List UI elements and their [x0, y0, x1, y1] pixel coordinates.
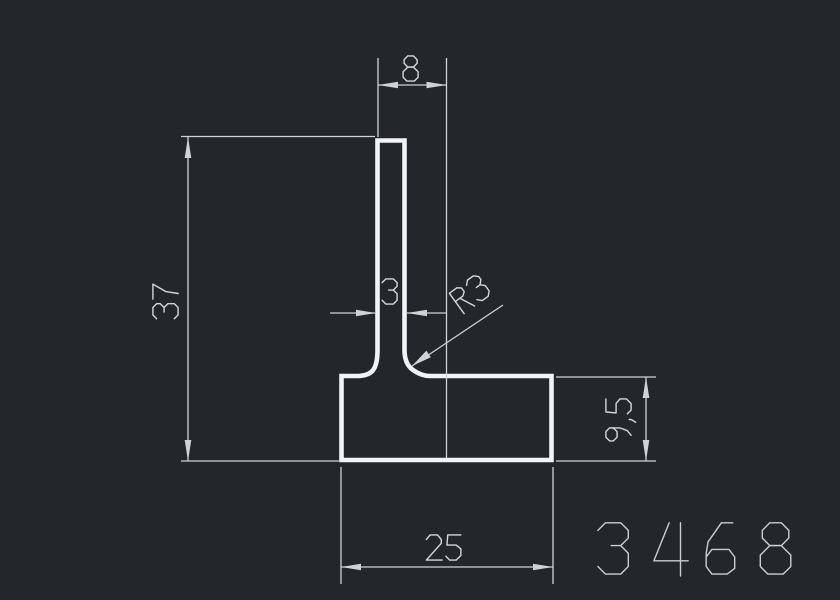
arrowhead-height-bottom	[185, 440, 192, 461]
arrowhead-top-width-right	[427, 82, 447, 89]
arrowhead-base-width-right	[533, 564, 553, 571]
arrowhead-height-top	[185, 137, 192, 158]
arrowhead-base-height-bottom	[643, 440, 650, 461]
cad-glyph-5	[606, 399, 631, 414]
cad-glyph-8	[404, 56, 417, 67]
cad-drawing-canvas	[0, 0, 840, 600]
cad-glyph-6	[706, 523, 735, 574]
cad-glyph-comma	[629, 420, 636, 423]
cad-glyph-3	[153, 304, 178, 319]
cad-glyph-8	[403, 67, 418, 81]
cad-glyph-2	[426, 535, 442, 560]
arrowhead-stem-width-left	[356, 310, 376, 317]
cad-drawing-svg	[0, 0, 840, 600]
part-number-label	[598, 523, 791, 576]
cad-glyph-3	[598, 523, 628, 574]
cad-glyph-8	[762, 523, 789, 546]
dim-label-overall-height	[153, 284, 178, 319]
cad-glyph-5	[446, 535, 461, 560]
arrowhead-fillet-leader	[412, 351, 431, 366]
cad-glyph-9	[606, 428, 617, 441]
dim-label-stem-width	[382, 279, 397, 304]
arrowhead-stem-width-right	[407, 310, 427, 317]
dimension-lines	[181, 58, 656, 584]
cad-glyph-3	[464, 274, 491, 303]
cad-glyph-7	[153, 284, 178, 299]
cad-glyph-3	[382, 279, 397, 304]
arrowhead-base-width-left	[341, 564, 361, 571]
cad-glyph-8	[760, 546, 791, 575]
cad-glyph-4	[654, 523, 688, 561]
dim-label-base-height	[606, 399, 636, 441]
dim-label-top-width	[403, 56, 418, 81]
dimension-arrowheads	[185, 82, 650, 571]
arrowhead-top-width-left	[378, 82, 398, 89]
arrowhead-base-height-top	[643, 377, 650, 398]
dim-label-base-width	[426, 535, 461, 560]
dim-label-fillet-radius	[449, 274, 491, 314]
